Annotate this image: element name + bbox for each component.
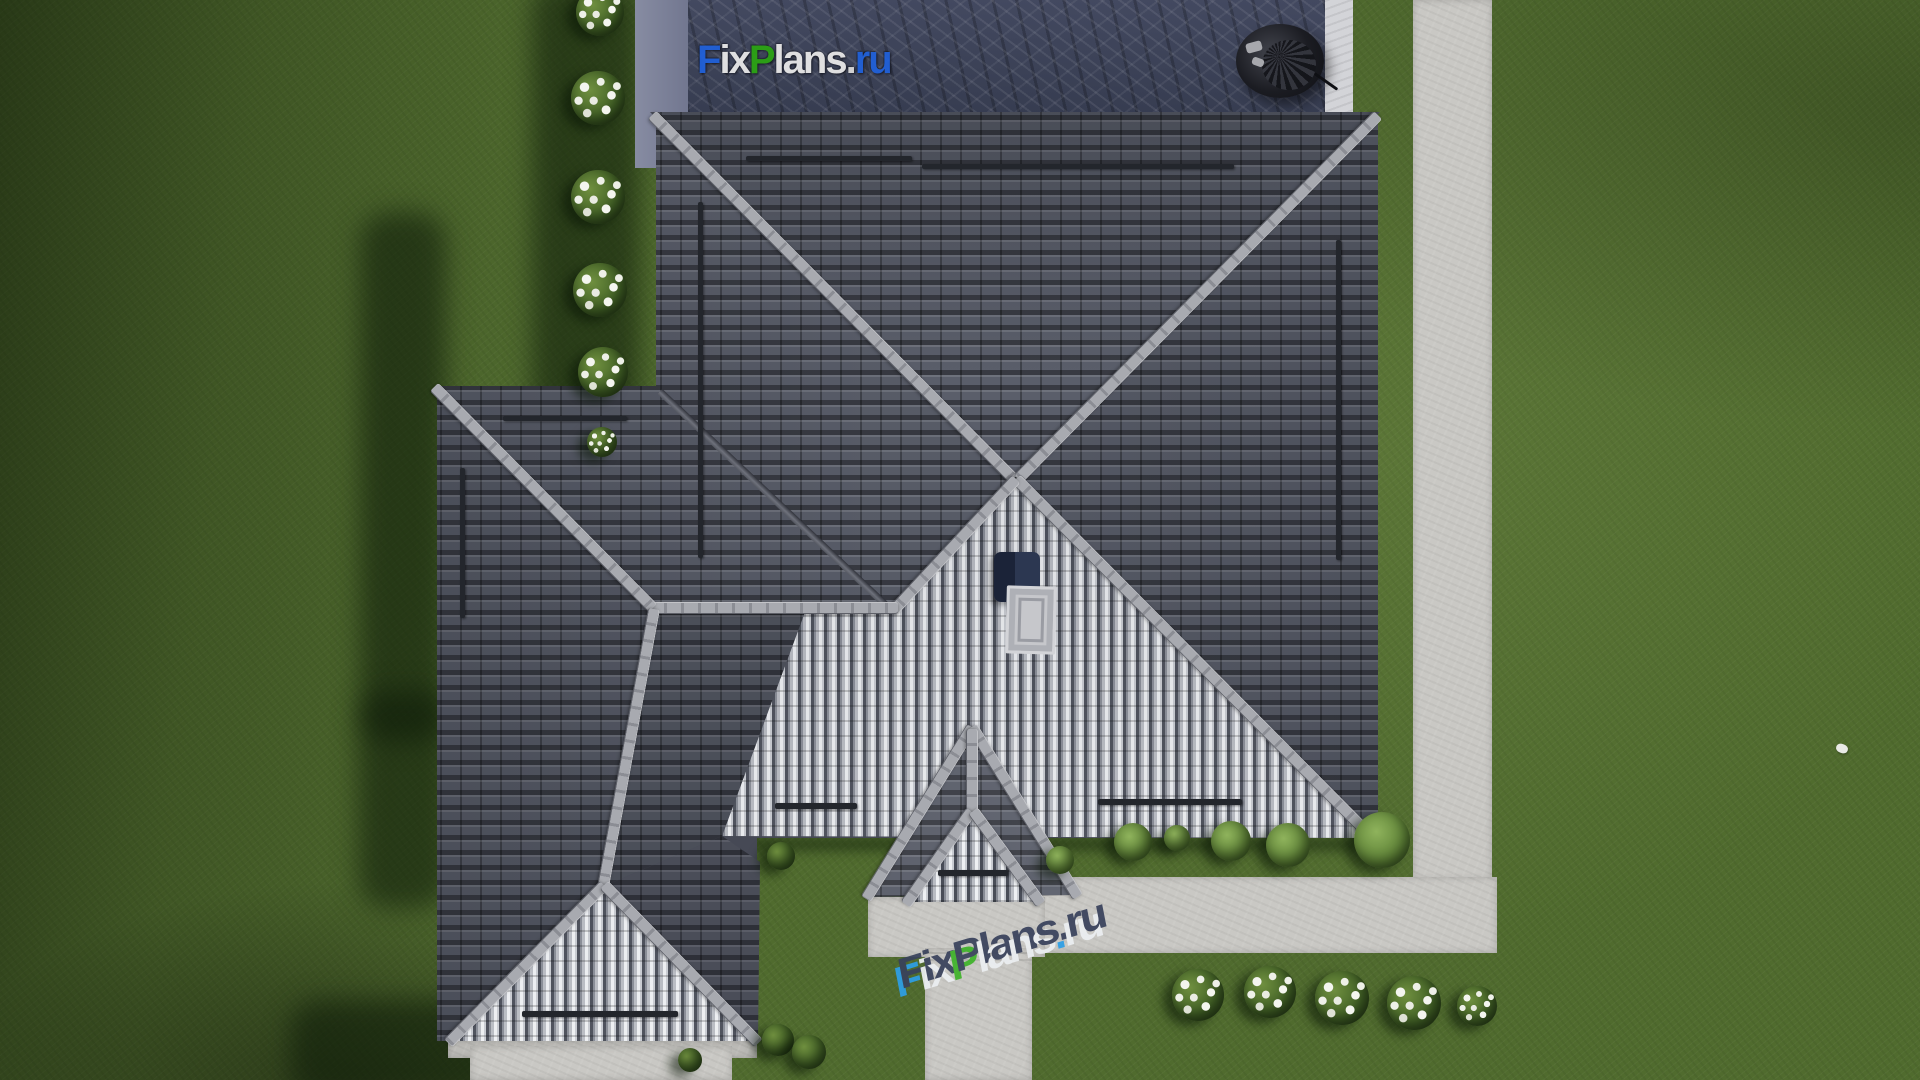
flower-bush bbox=[1457, 986, 1497, 1026]
ridge-porch-vertical bbox=[966, 729, 978, 819]
snow-guard bbox=[503, 416, 627, 421]
hedge-bush bbox=[1211, 821, 1251, 861]
path-right-vertical bbox=[1413, 0, 1492, 880]
flower-bush bbox=[571, 71, 625, 125]
snow-guard bbox=[938, 870, 1008, 876]
walkway-bush bbox=[762, 1024, 794, 1056]
aerial-house-render: FixPlans.ru FFiixxPPllaannss..rruu bbox=[0, 0, 1920, 1080]
flower-bush bbox=[573, 263, 627, 317]
hedge-bush bbox=[1164, 825, 1190, 851]
snow-guard bbox=[460, 468, 465, 618]
logo-letter: s bbox=[825, 38, 845, 82]
snow-guard bbox=[698, 202, 703, 558]
flower-bush bbox=[1172, 969, 1224, 1021]
flower-bush bbox=[1244, 966, 1296, 1018]
snow-guard bbox=[775, 803, 857, 809]
corner-bush bbox=[1354, 812, 1410, 868]
hedge-bush bbox=[1266, 823, 1310, 867]
walkway-bush bbox=[678, 1048, 702, 1072]
courtyard-bush bbox=[767, 842, 795, 870]
flower-bush bbox=[1387, 976, 1441, 1030]
snow-guard bbox=[1098, 799, 1242, 805]
furniture-fan-back bbox=[1262, 40, 1316, 90]
snow-guard bbox=[522, 1011, 678, 1017]
walkway-bush bbox=[792, 1035, 826, 1069]
flower-bush bbox=[571, 170, 625, 224]
logo-letter: x bbox=[729, 38, 749, 82]
flower-bush bbox=[1315, 971, 1369, 1025]
logo-letter: n bbox=[803, 38, 825, 82]
logo-letter: r bbox=[855, 38, 869, 82]
marble-strip bbox=[1325, 0, 1353, 116]
logo-letter: l bbox=[774, 38, 783, 82]
house-shadow-left bbox=[360, 212, 446, 742]
ridge-horizontal bbox=[650, 602, 898, 614]
snow-guard bbox=[746, 156, 912, 161]
hedge-bush bbox=[1046, 846, 1074, 874]
path-bottom-horizontal bbox=[1036, 877, 1497, 953]
hedge-bush bbox=[1114, 823, 1152, 861]
flower-bush bbox=[587, 427, 617, 457]
logo-letter: P bbox=[749, 38, 774, 82]
snow-guard bbox=[1336, 240, 1341, 560]
logo-letter: i bbox=[719, 38, 728, 82]
skylight-hatch bbox=[1005, 585, 1057, 654]
fixplans-logo-watermark: FixPlans.ru bbox=[697, 38, 891, 83]
flower-bush bbox=[578, 347, 628, 397]
logo-letter: u bbox=[868, 38, 890, 82]
logo-letter: F bbox=[697, 38, 719, 82]
logo-letter: . bbox=[846, 38, 855, 82]
logo-letter: a bbox=[783, 38, 803, 82]
snow-guard bbox=[922, 164, 1234, 169]
